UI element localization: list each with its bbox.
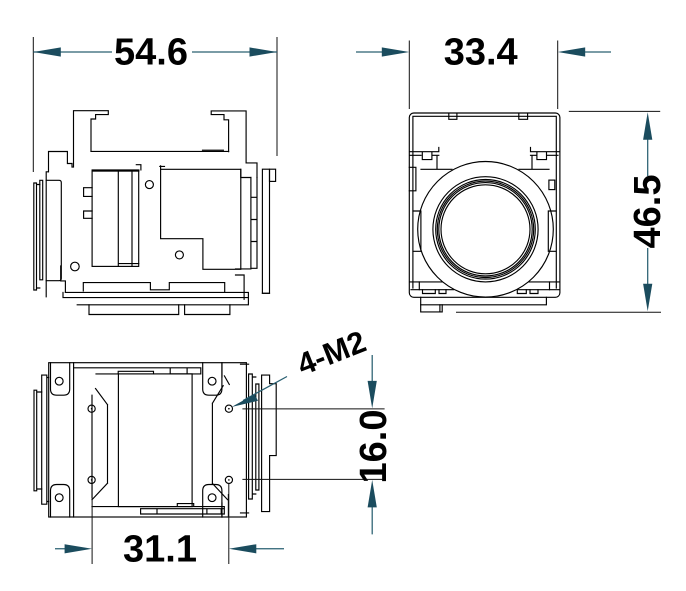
svg-text:33.4: 33.4 xyxy=(444,32,518,74)
svg-text:16.0: 16.0 xyxy=(353,410,395,484)
svg-text:4-M2: 4-M2 xyxy=(292,324,371,382)
svg-text:46.5: 46.5 xyxy=(627,175,669,249)
svg-text:54.6: 54.6 xyxy=(114,32,188,74)
svg-text:31.1: 31.1 xyxy=(123,529,197,571)
